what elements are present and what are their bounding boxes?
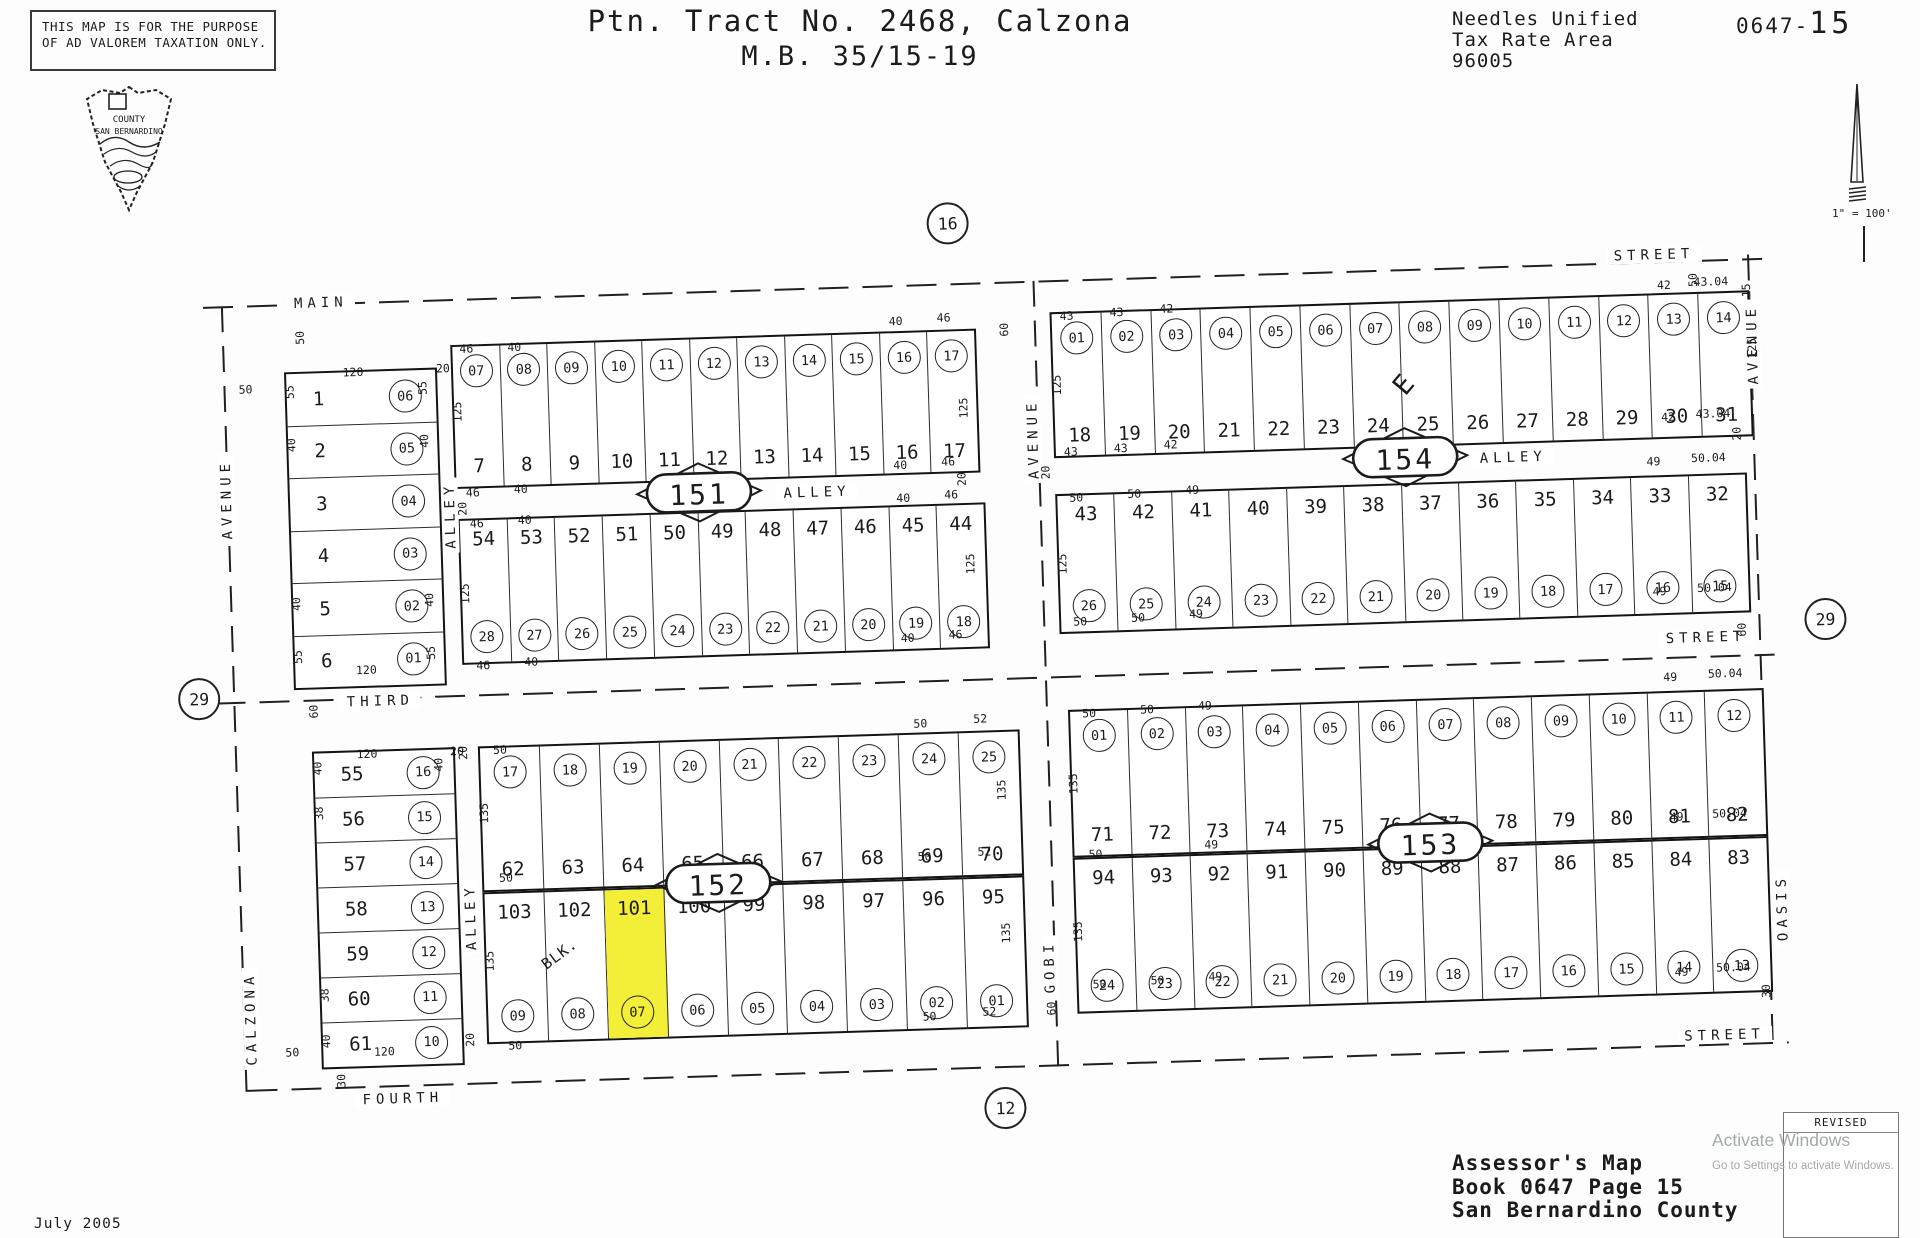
dimension-label: 20 bbox=[1038, 465, 1052, 479]
lot-number: 43 bbox=[1074, 503, 1098, 526]
dimension-label: 125 bbox=[458, 583, 473, 604]
lot-number: 60 bbox=[347, 988, 371, 1011]
lot-number: 6 bbox=[321, 650, 333, 672]
street-label: STREET bbox=[1677, 1026, 1772, 1045]
dimension-label: 49 bbox=[1185, 483, 1199, 497]
lot-column: 1010 bbox=[595, 341, 647, 482]
lot-number: 1 bbox=[312, 388, 324, 410]
dimension-label: 40 bbox=[900, 631, 914, 645]
lot-number: 54 bbox=[472, 528, 496, 551]
dimension-label: 38 bbox=[317, 988, 331, 1002]
dimension-label: 49 bbox=[1652, 584, 1666, 598]
svg-text:154: 154 bbox=[1375, 442, 1436, 477]
footer-line3: San Bernardino County bbox=[1452, 1199, 1739, 1223]
lots-55-61-grid: 5516561557145813591260116110 bbox=[312, 747, 465, 1069]
dimension-label: 49 bbox=[1198, 698, 1212, 712]
disclaimer-line1: THIS MAP IS FOR THE PURPOSE bbox=[42, 19, 274, 35]
dimension-label: 60 bbox=[1044, 1001, 1058, 1015]
assessor-parcel-circle: 12 bbox=[412, 935, 446, 969]
lot-column: 4620 bbox=[841, 507, 893, 650]
dimension-label: 40 bbox=[507, 340, 521, 354]
lot-number: 87 bbox=[1496, 854, 1520, 877]
dimension-label: 50 bbox=[913, 716, 927, 730]
dimension-label: 125 bbox=[1049, 374, 1064, 395]
lot-column: 1027 bbox=[1499, 299, 1553, 442]
assessor-parcel-circle: 22 bbox=[792, 746, 826, 780]
dimension-label: 46 bbox=[466, 485, 480, 499]
dimension-label: 40 bbox=[514, 482, 528, 496]
dimension-label: 50 bbox=[285, 1045, 299, 1059]
lot-column: 1111 bbox=[642, 340, 694, 481]
lot-column: 9602 bbox=[904, 879, 969, 1029]
lot-number: 42 bbox=[1132, 501, 1156, 524]
dimension-label: 120 bbox=[374, 1044, 395, 1059]
lot-number: 33 bbox=[1648, 485, 1672, 508]
lot-column: 088 bbox=[500, 344, 552, 485]
dimension-label: 50 bbox=[1140, 702, 1154, 716]
lot-number: 5 bbox=[319, 598, 331, 620]
seal-text-county: COUNTY bbox=[113, 115, 146, 125]
lot-number: 57 bbox=[343, 853, 367, 876]
lot-number: 32 bbox=[1706, 483, 1730, 506]
lot-column: 0979 bbox=[1532, 695, 1594, 841]
lot-column: 099 bbox=[547, 343, 599, 484]
assessor-map-footer: Assessor's Map Book 0647 Page 15 San Ber… bbox=[1452, 1152, 1739, 1223]
dimension-label: 49 bbox=[1646, 454, 1660, 468]
assessor-parcel-circle: 10 bbox=[1507, 307, 1541, 341]
assessor-parcel-circle: 14 bbox=[792, 343, 826, 377]
lot-number: 68 bbox=[861, 847, 885, 870]
street-label-vertical: CALZONA bbox=[242, 967, 261, 1069]
dimension-label: 42 bbox=[1657, 278, 1671, 292]
dimension-label: 125 bbox=[450, 401, 465, 422]
assessor-parcel-circle: 09 bbox=[501, 999, 535, 1033]
assessor-parcel-circle: 18 bbox=[1531, 574, 1565, 608]
assessor-parcel-circle: 20 bbox=[851, 608, 885, 642]
assessor-parcel-circle: 06 bbox=[1371, 709, 1405, 743]
street-label-vertical: GOBI bbox=[1041, 935, 1059, 997]
lot-column: 3720 bbox=[1402, 483, 1464, 621]
dimension-label: 125 bbox=[956, 397, 971, 418]
dimension-label: 46 bbox=[941, 454, 955, 468]
assessor-parcel-circle: 20 bbox=[1416, 578, 1450, 612]
dimension-label: 50 bbox=[238, 382, 252, 396]
lot-number: 34 bbox=[1591, 487, 1615, 510]
lot-number: 63 bbox=[561, 856, 585, 879]
lot-column: 1080 bbox=[1590, 694, 1652, 840]
tax-line1: Needles Unified bbox=[1452, 9, 1639, 30]
dimension-label: 40 bbox=[893, 458, 907, 472]
dimension-label: 55 bbox=[282, 385, 296, 399]
lot-column: 1863 bbox=[540, 745, 604, 889]
lot-number: 58 bbox=[345, 898, 369, 921]
dimension-label: 40 bbox=[417, 434, 431, 448]
book-code: 0647- bbox=[1736, 14, 1809, 38]
assessor-parcel-circle: 28 bbox=[470, 620, 504, 654]
assessor-parcel-circle: 02 bbox=[1140, 717, 1174, 751]
dimension-label: 60 bbox=[997, 323, 1011, 337]
dimension-label: 55 bbox=[424, 646, 438, 660]
lot-column: 5327 bbox=[507, 518, 559, 661]
dimension-label: 40 bbox=[518, 513, 532, 527]
lot-column: 1330 bbox=[1649, 294, 1703, 437]
lot-column: 9804 bbox=[784, 883, 849, 1033]
assessor-parcel-circle: 13 bbox=[410, 890, 444, 924]
assessor-parcel-circle: 16 bbox=[887, 340, 921, 374]
assessor-parcel-circle: 15 bbox=[1610, 952, 1644, 986]
junction-circle: 16 bbox=[926, 202, 969, 245]
assessor-parcel-circle: 11 bbox=[1557, 305, 1591, 339]
lot-number: 94 bbox=[1092, 866, 1116, 889]
assessor-parcel-circle: 12 bbox=[697, 346, 731, 380]
lot-number: 26 bbox=[1466, 412, 1490, 435]
activate-windows-watermark: Activate Windows bbox=[1712, 1130, 1850, 1151]
lot-number: 10 bbox=[610, 450, 634, 473]
assessor-parcel-circle: 26 bbox=[565, 617, 599, 651]
dimension-label: 135 bbox=[1066, 773, 1081, 794]
dimension-label: 120 bbox=[342, 365, 363, 380]
assessor-parcel-circle: 05 bbox=[740, 991, 774, 1025]
dimension-label: 46 bbox=[948, 627, 962, 641]
dimension-label: 50.04 bbox=[1716, 960, 1751, 975]
assessor-parcel-circle: 25 bbox=[972, 740, 1006, 774]
block-number-oval: 154 bbox=[1340, 426, 1470, 496]
lot-column: 1414 bbox=[785, 335, 837, 476]
assessor-parcel-circle: 17 bbox=[493, 755, 527, 789]
dimension-label: 52 bbox=[973, 711, 987, 725]
dimension-label: 135 bbox=[477, 803, 492, 824]
lot-column: 5125 bbox=[603, 515, 655, 658]
assessor-parcel-circle: 16 bbox=[1552, 954, 1586, 988]
dimension-label: 125 bbox=[1745, 338, 1760, 359]
dimension-label: 20 bbox=[1729, 427, 1743, 441]
dimension-label: 40 bbox=[422, 593, 436, 607]
lot-row: 5714 bbox=[317, 839, 457, 888]
dimension-label: 125 bbox=[1055, 553, 1070, 574]
lot-number: 45 bbox=[901, 514, 925, 537]
dimension-label: 46 bbox=[936, 310, 950, 324]
lot-column: 4822 bbox=[746, 510, 798, 653]
assessor-parcel-circle: 07 bbox=[1358, 312, 1392, 346]
lot-column: 3922 bbox=[1287, 487, 1349, 625]
lot-row: 601 bbox=[294, 632, 445, 688]
assessor-parcel-circle: 10 bbox=[1602, 702, 1636, 736]
lot-number: 103 bbox=[497, 901, 532, 924]
lot-number: 90 bbox=[1323, 859, 1347, 882]
dimension-label: 40 bbox=[289, 597, 303, 611]
lot-column: 0522 bbox=[1251, 306, 1305, 449]
assessor-parcel-circle: 03 bbox=[1159, 318, 1193, 352]
block-154-south-grid: 4326422541244023392238213720361935183417… bbox=[1055, 472, 1751, 634]
lot-number: 21 bbox=[1217, 419, 1241, 442]
svg-text:151: 151 bbox=[669, 477, 730, 512]
dimension-label: 50.04 bbox=[1697, 580, 1732, 595]
assessor-parcel-circle: 04 bbox=[1209, 316, 1243, 350]
north-arrow-tail bbox=[1863, 226, 1865, 262]
dimension-label: 50 bbox=[1073, 614, 1087, 628]
lot-number: 102 bbox=[557, 899, 592, 922]
dimension-label: 50 bbox=[1088, 847, 1102, 861]
assessor-parcel-circle: 03 bbox=[393, 537, 427, 571]
dimension-label: 40 bbox=[889, 314, 903, 328]
dimension-label: 60 bbox=[1735, 623, 1749, 637]
dimension-label: 50 bbox=[508, 1038, 522, 1052]
lot-column: 1212 bbox=[690, 338, 742, 479]
dimension-label: 135 bbox=[999, 922, 1014, 943]
assessor-parcel-circle: 21 bbox=[1263, 963, 1297, 997]
lot-number: 75 bbox=[1321, 816, 1345, 839]
assessor-parcel-circle: 11 bbox=[1659, 700, 1693, 734]
dimension-label: 60 bbox=[306, 704, 320, 718]
lot-column: 0373 bbox=[1185, 706, 1247, 852]
assessor-parcel-circle: 06 bbox=[680, 993, 714, 1027]
dimension-label: 50 bbox=[493, 743, 507, 757]
lot-row: 403 bbox=[291, 527, 442, 584]
lot-number: 93 bbox=[1150, 865, 1174, 888]
tax-rate-area-block: Needles Unified Tax Rate Area 96005 bbox=[1452, 9, 1639, 72]
street-label: MAIN bbox=[287, 294, 355, 312]
lot-column: 1229 bbox=[1599, 295, 1653, 438]
lot-column: 5024 bbox=[651, 513, 703, 656]
assessor-parcel-circle: 07 bbox=[620, 995, 654, 1029]
dimension-label: 42 bbox=[1661, 410, 1675, 424]
lot-number: 9 bbox=[568, 452, 580, 474]
assessor-parcel-circle: 25 bbox=[613, 615, 647, 649]
assessor-parcel-circle: 20 bbox=[673, 749, 707, 783]
assessor-parcel-circle: 04 bbox=[800, 989, 834, 1023]
block-number-oval: 152 bbox=[653, 852, 783, 922]
dimension-label: 50 bbox=[499, 870, 513, 884]
street-label: ALLEY bbox=[1472, 448, 1554, 467]
dimension-label: 30 bbox=[1759, 984, 1773, 998]
dimension-label: 50 bbox=[1150, 973, 1164, 987]
lot-number: 15 bbox=[848, 443, 872, 466]
dimension-label: 135 bbox=[994, 779, 1009, 800]
dimension-label: 49 bbox=[1204, 837, 1218, 851]
dimension-label: 49 bbox=[1189, 607, 1203, 621]
street-label: FOURTH bbox=[355, 1089, 450, 1108]
dimension-label: 38 bbox=[312, 806, 326, 820]
lot-number: 86 bbox=[1554, 852, 1578, 875]
map-title: Ptn. Tract No. 2468, Calzona bbox=[540, 4, 1180, 38]
lot-number: 40 bbox=[1246, 497, 1270, 520]
assessor-parcel-circle: 17 bbox=[1494, 956, 1528, 990]
street-dashed-line bbox=[248, 1041, 1789, 1092]
lot-number: 79 bbox=[1552, 809, 1576, 832]
lot-column: 9222 bbox=[1190, 854, 1252, 1008]
lot-number: 28 bbox=[1566, 408, 1590, 431]
dimension-label: 50 bbox=[293, 331, 307, 345]
assessor-parcel-circle: 14 bbox=[409, 845, 443, 879]
assessor-parcel-circle: 01 bbox=[1082, 718, 1116, 752]
lot-number: 47 bbox=[806, 517, 830, 540]
dimension-label: 46 bbox=[944, 487, 958, 501]
block-number-oval: 153 bbox=[1365, 812, 1495, 882]
lot-number: 78 bbox=[1495, 811, 1519, 834]
lot-number: 95 bbox=[982, 886, 1006, 909]
lot-number: 74 bbox=[1264, 818, 1288, 841]
assessor-parcel-circle: 15 bbox=[408, 800, 442, 834]
lot-column: 9703 bbox=[844, 881, 909, 1031]
assessor-parcel-circle: 20 bbox=[1321, 961, 1355, 995]
lot-number: 2 bbox=[314, 440, 326, 462]
lot-number: 56 bbox=[342, 808, 366, 831]
assessor-parcel-circle: 13 bbox=[1657, 302, 1691, 336]
dimension-label: 42 bbox=[1159, 301, 1173, 315]
dimension-label: 43 bbox=[1109, 305, 1123, 319]
assessor-parcel-circle: 05 bbox=[1313, 711, 1347, 745]
lot-column: 4418 bbox=[937, 504, 988, 647]
dimension-label: 20 bbox=[455, 502, 469, 516]
lot-number: 83 bbox=[1727, 847, 1751, 870]
assessor-parcel-circle: 07 bbox=[1428, 708, 1462, 742]
assessor-parcel-circle: 22 bbox=[756, 611, 790, 645]
dimension-label: 55 bbox=[291, 650, 305, 664]
lots-1-6-grid: 106205304403502601 bbox=[284, 368, 447, 691]
lot-number: 41 bbox=[1189, 499, 1213, 522]
lot-number: 84 bbox=[1669, 848, 1693, 871]
disclaimer-box: THIS MAP IS FOR THE PURPOSE OF AD VALORE… bbox=[30, 10, 276, 71]
street-label: ALLEY bbox=[776, 483, 858, 502]
lot-column: 0926 bbox=[1450, 300, 1504, 443]
dimension-label: 40 bbox=[524, 655, 538, 669]
lot-column: 9121 bbox=[1248, 852, 1310, 1006]
dimension-label: 125 bbox=[963, 553, 978, 574]
lot-number: 97 bbox=[862, 890, 886, 913]
dimension-label: 46 bbox=[476, 658, 490, 672]
lot-column: 2267 bbox=[779, 737, 843, 881]
map-date: July 2005 bbox=[34, 1216, 122, 1232]
dimension-label: 50.04 bbox=[1691, 450, 1726, 465]
lot-number: 59 bbox=[346, 943, 370, 966]
dimension-label: 49 bbox=[1663, 670, 1677, 684]
seal-text-san-bernardino: SAN BERNARDINO bbox=[95, 127, 163, 136]
lot-column: 4519 bbox=[889, 506, 941, 649]
lot-number: 71 bbox=[1090, 824, 1114, 847]
assessor-parcel-circle: 03 bbox=[860, 988, 894, 1022]
street-label: THIRD bbox=[340, 692, 422, 711]
lot-column: 0575 bbox=[1301, 703, 1363, 849]
dimension-label: 50 bbox=[1127, 486, 1141, 500]
lot-row: 5615 bbox=[315, 794, 455, 843]
assessor-parcel-circle: 10 bbox=[602, 349, 636, 383]
lot-number: 96 bbox=[922, 888, 946, 911]
street-label-vertical: OASIS bbox=[1773, 870, 1791, 946]
street-label-vertical: ALLEY bbox=[462, 879, 480, 955]
assessor-parcel-circle: 02 bbox=[1109, 319, 1143, 353]
dimension-label: 50.04 bbox=[1712, 806, 1747, 821]
lot-number: 53 bbox=[520, 526, 544, 549]
assessor-parcel-circle: 24 bbox=[661, 614, 695, 648]
parcel-map: 1062053044035026015516561557145813591260… bbox=[202, 226, 1799, 1155]
lot-number: 61 bbox=[349, 1033, 373, 1056]
dimension-label: 46 bbox=[459, 341, 473, 355]
assessor-parcel-circle: 11 bbox=[413, 980, 447, 1014]
lot-row: 502 bbox=[293, 579, 444, 636]
lot-number: 3 bbox=[316, 493, 328, 515]
dimension-label: 135 bbox=[1071, 921, 1086, 942]
lot-column: 1515 bbox=[832, 334, 884, 475]
dimension-label: 52 bbox=[977, 844, 991, 858]
assessor-parcel-circle: 03 bbox=[1198, 715, 1232, 749]
assessor-parcel-circle: 13 bbox=[744, 345, 778, 379]
lot-column: 0474 bbox=[1243, 705, 1305, 851]
lot-number: 52 bbox=[567, 525, 591, 548]
lot-number: 64 bbox=[621, 854, 645, 877]
lot-column: 0272 bbox=[1128, 708, 1190, 854]
activate-windows-watermark-sub: Go to Settings to activate Windows. bbox=[1712, 1160, 1894, 1172]
assessor-parcel-circle: 12 bbox=[1717, 698, 1751, 732]
dimension-label: 50 bbox=[1092, 977, 1106, 991]
dimension-label: 46 bbox=[470, 516, 484, 530]
lot-column: 8515 bbox=[1594, 842, 1656, 996]
assessor-parcel-circle: 19 bbox=[613, 751, 647, 785]
dimension-label: 50 bbox=[1686, 273, 1700, 287]
lot-column: 1128 bbox=[1549, 297, 1603, 440]
lot-column: 0825 bbox=[1400, 302, 1454, 445]
assessor-parcel-circle: 23 bbox=[708, 612, 742, 646]
north-arrow bbox=[1842, 84, 1902, 210]
scale-label: 1" = 100' bbox=[1832, 207, 1892, 220]
lot-row: 5516 bbox=[314, 749, 454, 798]
lot-number: 44 bbox=[949, 513, 973, 536]
lot-number: 92 bbox=[1207, 863, 1231, 886]
lot-number: 18 bbox=[1068, 424, 1092, 447]
assessor-parcel-circle: 06 bbox=[1308, 313, 1342, 347]
lot-row: 5813 bbox=[318, 884, 458, 933]
lot-column: 4023 bbox=[1229, 489, 1291, 627]
dimension-label: 52 bbox=[982, 1004, 996, 1018]
lot-column: 0320 bbox=[1151, 310, 1205, 453]
lot-column: 3821 bbox=[1344, 485, 1406, 623]
tax-line3: 96005 bbox=[1452, 51, 1639, 72]
assessor-parcel-circle: 08 bbox=[1486, 706, 1520, 740]
assessor-parcel-circle: 12 bbox=[1607, 304, 1641, 338]
dimension-label: 20 bbox=[463, 1033, 477, 1047]
lot-column: 1313 bbox=[737, 337, 789, 478]
lot-number: 23 bbox=[1317, 416, 1341, 439]
footer-line1: Assessor's Map bbox=[1452, 1152, 1739, 1176]
tax-line2: Tax Rate Area bbox=[1452, 30, 1639, 51]
assessor-parcel-circle: 09 bbox=[1458, 308, 1492, 342]
dimension-label: 30 bbox=[334, 1074, 348, 1088]
assessor-parcel-circle: 09 bbox=[554, 351, 588, 385]
assessor-parcel-circle: 07 bbox=[459, 354, 493, 388]
lot-number: 29 bbox=[1615, 407, 1639, 430]
assessor-parcel-circle: 04 bbox=[1255, 713, 1289, 747]
lot-row: 5912 bbox=[320, 929, 460, 978]
assessor-parcel-circle: 08 bbox=[1408, 310, 1442, 344]
county-seal: COUNTY SAN BERNARDINO bbox=[78, 82, 180, 218]
dimension-label: 50 bbox=[1131, 610, 1145, 624]
junction-circle: 12 bbox=[984, 1086, 1027, 1129]
assessor-parcel-circle: 18 bbox=[553, 753, 587, 787]
lot-column: 4923 bbox=[698, 512, 750, 655]
lot-column: 3518 bbox=[1516, 480, 1578, 618]
lot-column: 0623 bbox=[1300, 305, 1354, 448]
dimension-label: 20 bbox=[436, 361, 450, 375]
svg-text:153: 153 bbox=[1400, 828, 1461, 863]
lot-number: 39 bbox=[1304, 496, 1328, 519]
dimension-label: 50 bbox=[1069, 490, 1083, 504]
assessor-parcel-circle: 17 bbox=[1588, 572, 1622, 606]
assessor-parcel-circle: 01 bbox=[1060, 321, 1094, 355]
dimension-label: 40 bbox=[284, 438, 298, 452]
dimension-label: 43 bbox=[1064, 444, 1078, 458]
assessor-parcel-circle: 21 bbox=[804, 609, 838, 643]
assessor-parcel-circle: 10 bbox=[415, 1025, 449, 1059]
dimension-label: 43.04 bbox=[1695, 406, 1730, 421]
